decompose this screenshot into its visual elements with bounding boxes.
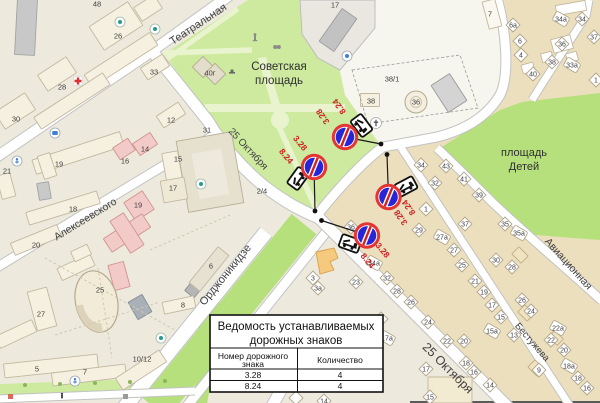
svg-text:23: 23 <box>352 280 360 287</box>
svg-text:8: 8 <box>181 301 185 310</box>
svg-text:6: 6 <box>518 39 522 46</box>
svg-text:17: 17 <box>422 367 430 374</box>
svg-text:1: 1 <box>594 78 598 85</box>
svg-text:30: 30 <box>492 258 500 265</box>
svg-text:4: 4 <box>519 53 523 60</box>
svg-text:37: 37 <box>590 35 598 42</box>
svg-text:6а: 6а <box>509 23 517 30</box>
svg-text:17: 17 <box>331 1 339 10</box>
svg-text:38: 38 <box>367 97 375 106</box>
svg-text:18а: 18а <box>563 364 575 371</box>
svg-text:8.24: 8.24 <box>245 381 262 391</box>
svg-text:площадь: площадь <box>501 147 547 159</box>
svg-text:22а: 22а <box>552 326 564 333</box>
svg-text:37: 37 <box>461 222 469 229</box>
svg-text:27: 27 <box>450 248 458 255</box>
svg-text:4: 4 <box>338 370 343 380</box>
svg-text:40г: 40г <box>204 69 215 78</box>
svg-text:3: 3 <box>311 276 315 283</box>
svg-text:16: 16 <box>121 157 129 166</box>
svg-text:7: 7 <box>83 368 87 377</box>
svg-text:29: 29 <box>415 228 423 235</box>
svg-text:36: 36 <box>412 98 420 107</box>
svg-text:18: 18 <box>574 376 582 383</box>
svg-text:43: 43 <box>442 164 450 171</box>
svg-text:дорожных знаков: дорожных знаков <box>250 335 343 347</box>
svg-text:20: 20 <box>32 241 40 250</box>
svg-text:10/12: 10/12 <box>133 355 152 364</box>
svg-text:17: 17 <box>488 303 496 310</box>
svg-text:3.28: 3.28 <box>245 370 262 380</box>
svg-text:33а: 33а <box>566 63 578 70</box>
svg-text:площадь: площадь <box>255 75 303 87</box>
svg-text:31: 31 <box>203 126 211 135</box>
svg-text:24: 24 <box>527 309 535 316</box>
svg-text:12: 12 <box>167 116 175 125</box>
svg-text:34: 34 <box>578 17 586 24</box>
svg-text:15а: 15а <box>486 329 498 336</box>
svg-text:1: 1 <box>424 207 428 214</box>
svg-text:41: 41 <box>460 177 468 184</box>
svg-text:25: 25 <box>458 263 466 270</box>
svg-text:21: 21 <box>3 167 11 176</box>
svg-text:13: 13 <box>510 333 518 340</box>
svg-text:39: 39 <box>475 193 483 200</box>
svg-text:Детей: Детей <box>509 161 539 173</box>
svg-text:16: 16 <box>470 370 478 377</box>
svg-text:16: 16 <box>583 386 591 393</box>
svg-text:20: 20 <box>460 339 468 346</box>
svg-text:19: 19 <box>480 290 488 297</box>
svg-text:34а: 34а <box>555 17 567 24</box>
svg-text:19: 19 <box>134 201 142 210</box>
svg-text:14: 14 <box>141 145 149 154</box>
svg-text:15: 15 <box>497 315 505 322</box>
svg-text:22: 22 <box>443 339 451 346</box>
svg-text:4: 4 <box>338 381 343 391</box>
svg-text:22: 22 <box>547 338 555 345</box>
svg-text:32: 32 <box>431 181 439 188</box>
svg-text:28: 28 <box>393 289 401 296</box>
svg-text:9: 9 <box>537 368 541 375</box>
svg-text:36: 36 <box>558 42 566 49</box>
svg-text:Советская: Советская <box>251 61 307 73</box>
svg-text:48: 48 <box>93 0 101 9</box>
svg-text:28: 28 <box>58 83 66 92</box>
svg-text:14: 14 <box>320 399 328 403</box>
svg-text:14: 14 <box>486 383 494 390</box>
svg-text:24: 24 <box>424 320 432 327</box>
svg-text:5: 5 <box>35 365 39 374</box>
svg-text:28: 28 <box>508 265 516 272</box>
svg-text:34: 34 <box>417 163 425 170</box>
svg-text:2/4: 2/4 <box>257 187 267 196</box>
svg-text:Количество: Количество <box>317 355 363 365</box>
svg-text:38/1: 38/1 <box>385 75 400 84</box>
svg-text:3а: 3а <box>314 286 322 293</box>
svg-text:35: 35 <box>501 222 509 229</box>
svg-text:38: 38 <box>548 60 556 67</box>
svg-text:15: 15 <box>426 395 434 402</box>
svg-text:Ведомость устанавливаемых: Ведомость устанавливаемых <box>218 321 375 333</box>
svg-text:26: 26 <box>114 32 122 41</box>
svg-text:35а: 35а <box>513 231 525 238</box>
svg-text:40: 40 <box>529 72 537 79</box>
svg-text:20: 20 <box>560 348 568 355</box>
svg-text:15: 15 <box>174 155 182 164</box>
svg-text:32: 32 <box>383 276 391 283</box>
svg-text:25: 25 <box>96 286 104 295</box>
svg-text:18: 18 <box>462 361 470 368</box>
svg-text:33: 33 <box>150 68 158 77</box>
svg-text:21: 21 <box>471 279 479 286</box>
svg-text:27: 27 <box>37 310 45 319</box>
svg-text:26: 26 <box>407 300 415 307</box>
svg-text:26: 26 <box>518 298 526 305</box>
svg-text:знака: знака <box>242 359 264 369</box>
svg-text:27а: 27а <box>436 235 448 242</box>
svg-text:6: 6 <box>209 262 213 271</box>
svg-text:7: 7 <box>488 10 492 19</box>
svg-text:30: 30 <box>12 115 20 124</box>
svg-text:19: 19 <box>55 160 63 169</box>
svg-text:18: 18 <box>69 205 77 214</box>
svg-text:17: 17 <box>169 184 177 193</box>
